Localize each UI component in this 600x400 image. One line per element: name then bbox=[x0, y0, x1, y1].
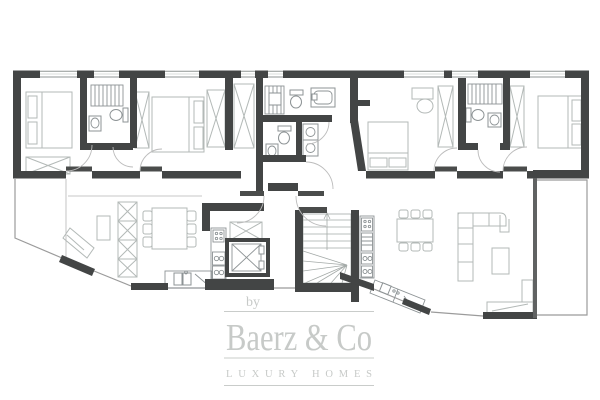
wardrobe-3 bbox=[438, 86, 453, 147]
bed-2 bbox=[152, 97, 204, 152]
coffee-table bbox=[492, 248, 509, 274]
terrace-door bbox=[59, 255, 95, 276]
sideboard bbox=[97, 216, 110, 240]
wardrobe-4 bbox=[510, 86, 524, 147]
toilet-3 bbox=[472, 110, 484, 121]
watermark-brand: Baerz & Co bbox=[226, 317, 372, 359]
shower-3 bbox=[468, 84, 502, 104]
toilet-1 bbox=[110, 110, 122, 121]
door-arc-bath3 bbox=[478, 150, 500, 172]
vanity-desk bbox=[412, 88, 433, 99]
toilet-3-tank bbox=[466, 108, 471, 122]
toilet-a bbox=[291, 96, 302, 108]
floor-plan-page: by Baerz & Co LUXURY HOMES bbox=[0, 0, 600, 400]
wardrobe-2b bbox=[207, 90, 225, 147]
kitchen-sink-2 bbox=[379, 283, 391, 295]
bedroom-1-furniture bbox=[26, 92, 72, 174]
washer bbox=[303, 124, 318, 140]
elevator-core bbox=[227, 222, 268, 275]
bedroom-3-furniture bbox=[368, 86, 453, 170]
bathroom-3-fixtures bbox=[466, 84, 502, 127]
watermark-tagline: LUXURY HOMES bbox=[226, 369, 372, 380]
toilet-b bbox=[279, 132, 290, 144]
duct-closet bbox=[234, 84, 254, 148]
bed-3 bbox=[368, 122, 408, 170]
window-bench bbox=[487, 280, 533, 313]
shelf-column bbox=[118, 202, 137, 277]
watermark: by Baerz & Co LUXURY HOMES bbox=[224, 295, 374, 386]
toilet-b-tank bbox=[278, 126, 291, 131]
sink-a bbox=[269, 93, 281, 105]
bathroom-1-fixtures bbox=[89, 85, 128, 131]
bedroom-2-furniture bbox=[135, 90, 225, 152]
wardrobe-2a bbox=[135, 92, 149, 148]
door-arc-bath-b bbox=[306, 162, 333, 189]
kitchen-sink-1 bbox=[174, 273, 182, 285]
toilet-1-tank bbox=[123, 108, 128, 122]
left-wall bbox=[13, 71, 21, 179]
bathroom-b-fixtures bbox=[266, 124, 318, 158]
floor-plan-image: by Baerz & Co LUXURY HOMES bbox=[0, 0, 600, 400]
bed-1 bbox=[26, 92, 72, 148]
living-2-furniture bbox=[397, 210, 533, 313]
dining-table-1 bbox=[143, 208, 196, 249]
watermark-prefix: by bbox=[246, 295, 260, 310]
terrace-chaise bbox=[63, 228, 94, 258]
right-wall bbox=[581, 71, 589, 179]
dining-table-2 bbox=[397, 210, 433, 251]
toilet-a-tank bbox=[290, 90, 303, 95]
angled-window bbox=[402, 298, 431, 315]
stairwell bbox=[303, 213, 351, 283]
sofa bbox=[458, 213, 509, 281]
bed-4 bbox=[538, 96, 582, 148]
bathroom-a-fixtures bbox=[265, 86, 335, 114]
living-1-furniture bbox=[63, 202, 226, 288]
hall-closet bbox=[230, 222, 262, 240]
stool bbox=[417, 99, 433, 113]
bedroom-4-furniture bbox=[510, 86, 582, 148]
